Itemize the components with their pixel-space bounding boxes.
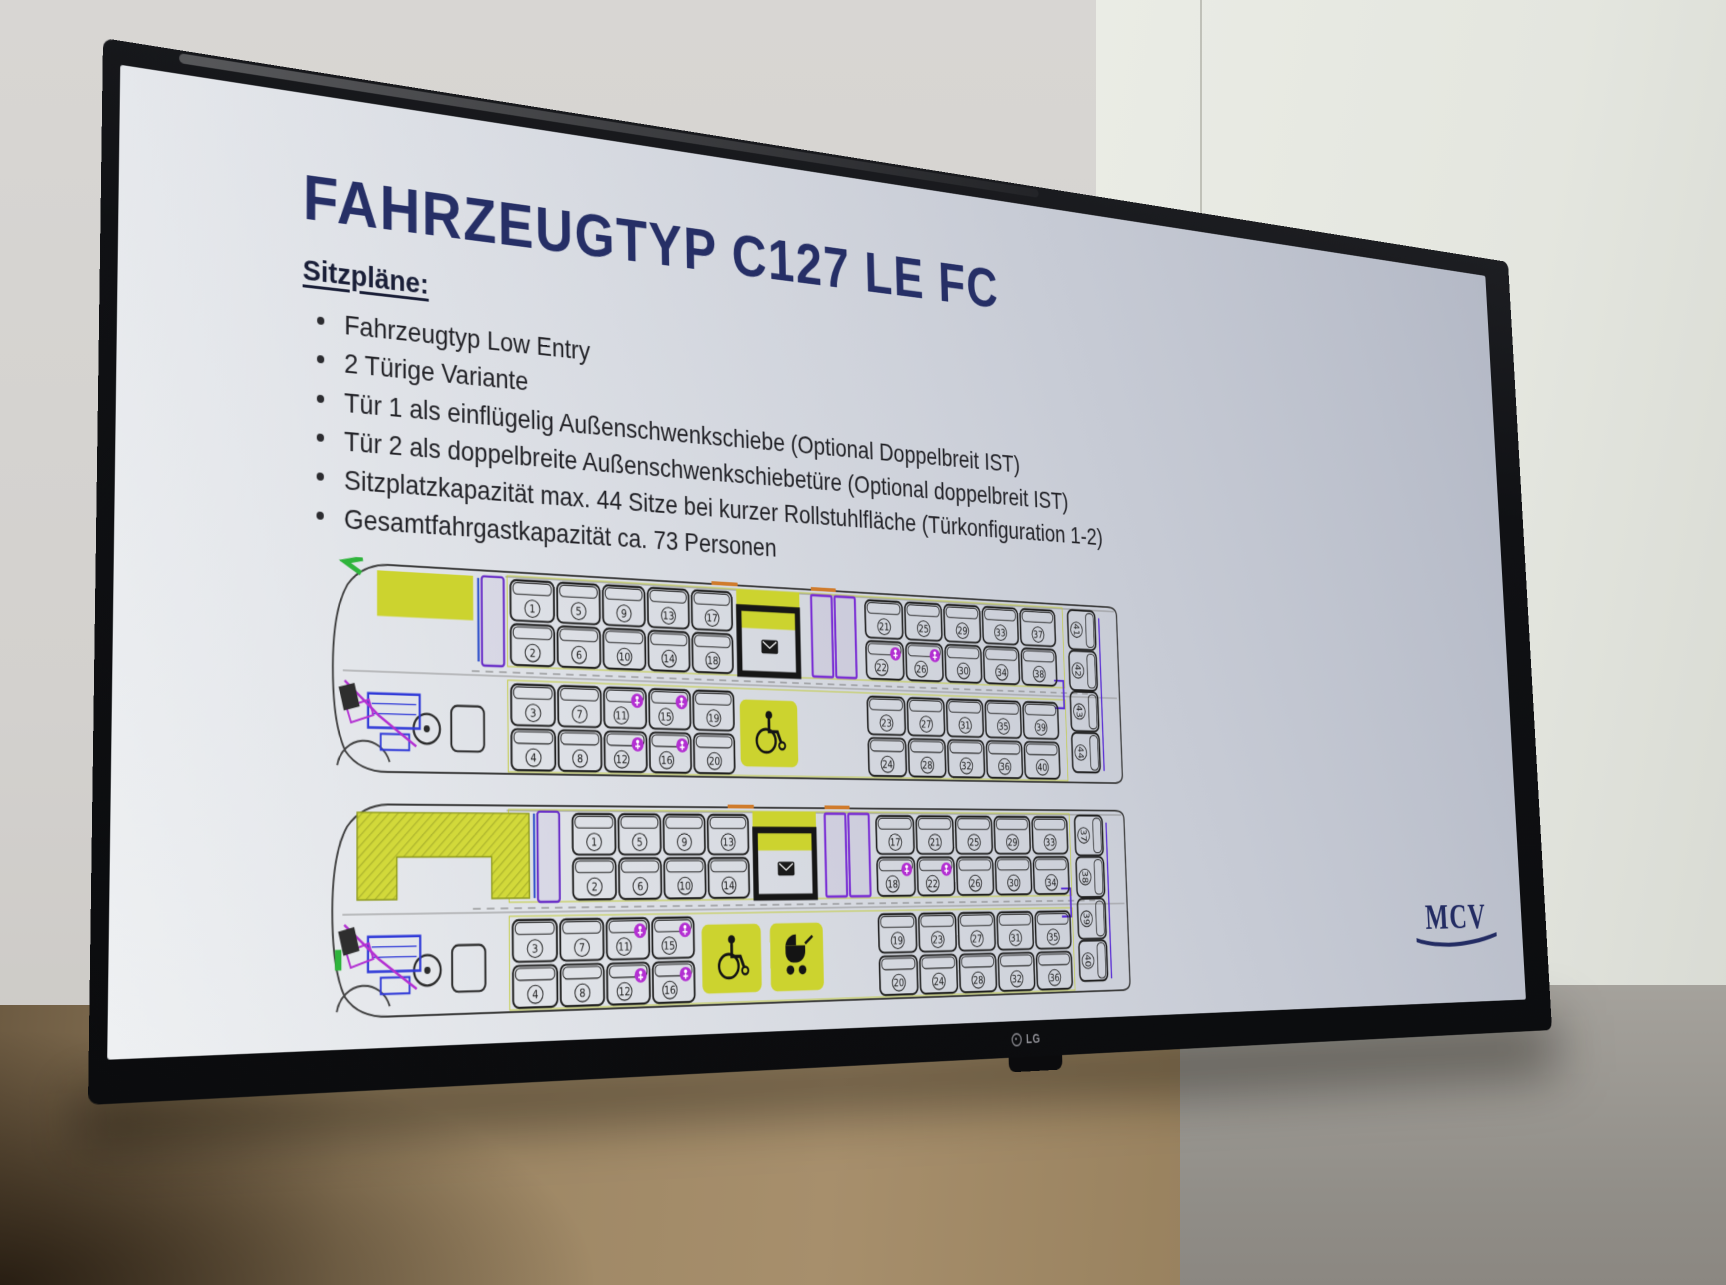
svg-text:26: 26 xyxy=(916,663,927,676)
svg-text:42: 42 xyxy=(1073,664,1083,677)
svg-text:24: 24 xyxy=(934,975,945,988)
svg-text:23: 23 xyxy=(881,717,892,730)
svg-text:19: 19 xyxy=(892,934,903,947)
svg-text:15: 15 xyxy=(660,710,672,724)
svg-text:27: 27 xyxy=(921,718,932,731)
svg-text:44: 44 xyxy=(1076,746,1086,759)
svg-text:37: 37 xyxy=(1079,829,1089,842)
svg-text:28: 28 xyxy=(973,974,984,987)
svg-text:7: 7 xyxy=(579,941,585,955)
mcv-logo-text: MCV xyxy=(1413,899,1497,936)
svg-text:31: 31 xyxy=(960,719,970,732)
svg-text:36: 36 xyxy=(1000,761,1010,773)
svg-text:13: 13 xyxy=(722,836,734,849)
svg-text:9: 9 xyxy=(681,836,687,849)
seatmap-variant-2: 1256910131417182122252629303334347811121… xyxy=(300,798,1156,1027)
svg-text:2: 2 xyxy=(530,646,536,660)
svg-text:11: 11 xyxy=(615,709,627,723)
svg-text:3: 3 xyxy=(532,942,538,956)
svg-text:33: 33 xyxy=(1045,836,1055,848)
svg-text:16: 16 xyxy=(661,754,673,767)
svg-text:20: 20 xyxy=(893,976,904,989)
svg-text:39: 39 xyxy=(1036,721,1046,733)
svg-text:10: 10 xyxy=(619,650,631,664)
svg-text:7: 7 xyxy=(577,708,583,722)
svg-text:12: 12 xyxy=(619,985,631,999)
svg-text:8: 8 xyxy=(579,986,585,1000)
svg-text:34: 34 xyxy=(1046,877,1056,889)
svg-text:18: 18 xyxy=(887,878,898,891)
svg-text:25: 25 xyxy=(918,623,929,636)
svg-text:34: 34 xyxy=(997,666,1007,679)
svg-text:3: 3 xyxy=(530,706,536,720)
svg-text:38: 38 xyxy=(1034,668,1044,680)
svg-text:21: 21 xyxy=(879,620,890,633)
svg-text:41: 41 xyxy=(1072,624,1082,637)
lg-logo-text: LG xyxy=(1026,1031,1041,1046)
svg-text:16: 16 xyxy=(664,983,676,997)
svg-text:4: 4 xyxy=(530,751,536,765)
svg-text:23: 23 xyxy=(932,933,943,946)
svg-text:12: 12 xyxy=(616,753,628,767)
svg-text:9: 9 xyxy=(621,607,627,621)
svg-text:38: 38 xyxy=(1080,871,1090,884)
svg-text:5: 5 xyxy=(576,605,582,619)
svg-text:11: 11 xyxy=(618,940,630,954)
svg-text:40: 40 xyxy=(1037,761,1047,773)
svg-text:22: 22 xyxy=(927,878,938,891)
svg-text:1: 1 xyxy=(591,835,597,849)
photo-of-tv-scene: { "scene": { "tv_brand": "LG", "colors":… xyxy=(0,0,1726,1285)
svg-text:8: 8 xyxy=(577,752,583,766)
svg-text:29: 29 xyxy=(957,625,967,638)
lg-circle-icon xyxy=(1011,1032,1022,1046)
svg-text:13: 13 xyxy=(663,609,675,623)
svg-text:39: 39 xyxy=(1082,913,1092,926)
svg-text:10: 10 xyxy=(679,879,691,893)
svg-text:22: 22 xyxy=(876,661,887,674)
svg-text:30: 30 xyxy=(958,665,968,678)
svg-text:24: 24 xyxy=(882,758,893,771)
svg-text:18: 18 xyxy=(707,654,719,667)
svg-text:17: 17 xyxy=(890,836,901,849)
svg-text:21: 21 xyxy=(930,836,941,849)
svg-text:4: 4 xyxy=(532,988,538,1002)
svg-text:36: 36 xyxy=(1050,972,1060,985)
mcv-logo: MCV xyxy=(1413,899,1498,949)
tv-ir-notch xyxy=(1009,1055,1063,1072)
svg-text:27: 27 xyxy=(972,933,983,946)
seatmap-diagrams: 1256910131417182122252629303334373834781… xyxy=(300,554,1509,1026)
svg-text:29: 29 xyxy=(1007,836,1017,848)
svg-text:14: 14 xyxy=(663,652,675,666)
svg-text:2: 2 xyxy=(592,880,598,894)
svg-text:35: 35 xyxy=(998,720,1008,733)
svg-text:14: 14 xyxy=(723,879,735,892)
svg-text:33: 33 xyxy=(995,627,1005,640)
svg-text:6: 6 xyxy=(576,648,582,662)
svg-text:6: 6 xyxy=(637,880,643,894)
svg-text:32: 32 xyxy=(1012,973,1022,986)
svg-text:20: 20 xyxy=(709,755,721,768)
lg-badge: LG xyxy=(1011,1027,1041,1050)
svg-text:25: 25 xyxy=(969,836,979,848)
svg-text:43: 43 xyxy=(1075,705,1085,718)
svg-text:5: 5 xyxy=(637,836,643,849)
svg-text:19: 19 xyxy=(708,712,720,725)
svg-text:31: 31 xyxy=(1010,932,1020,945)
svg-text:17: 17 xyxy=(706,611,717,625)
svg-text:28: 28 xyxy=(922,759,933,772)
svg-text:15: 15 xyxy=(663,939,675,953)
svg-text:35: 35 xyxy=(1048,931,1058,944)
svg-text:1: 1 xyxy=(529,602,535,616)
svg-text:32: 32 xyxy=(961,760,971,773)
svg-text:30: 30 xyxy=(1009,877,1019,890)
svg-text:40: 40 xyxy=(1083,954,1093,967)
svg-text:26: 26 xyxy=(970,877,980,890)
seatmap-variant-1: 1256910131417182122252629303334373834781… xyxy=(301,554,1148,789)
svg-text:37: 37 xyxy=(1033,629,1043,642)
